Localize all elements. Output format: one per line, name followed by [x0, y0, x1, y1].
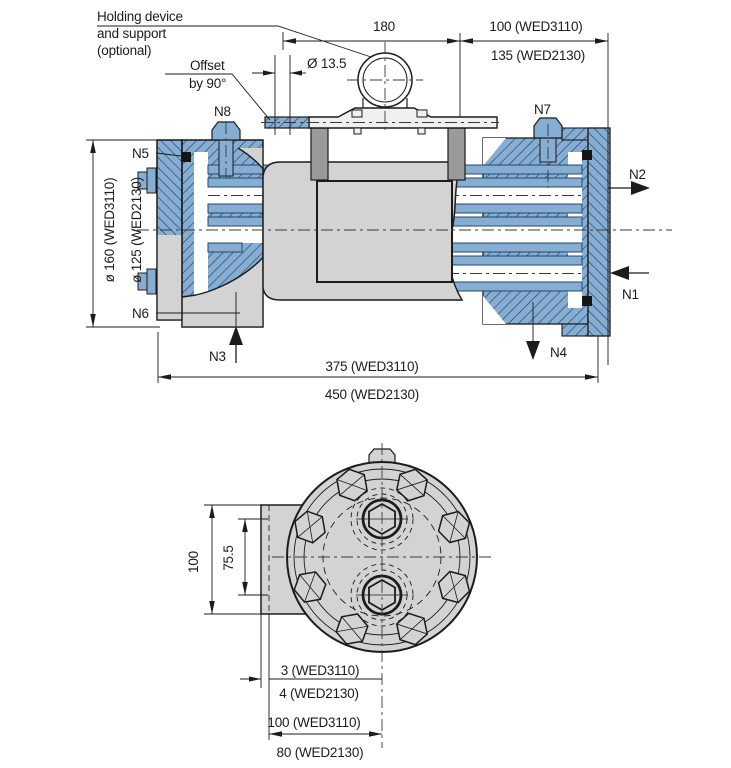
- end-view: 100 75.5 3 (WED3110) 4 (WED2130) 100 (WE…: [186, 443, 492, 760]
- port-label-n1: N1: [622, 287, 639, 302]
- n1-flow-arrow: [610, 266, 649, 280]
- dim-port-spacing: 75.5: [221, 545, 236, 570]
- offset-note-line1: Offset: [190, 58, 225, 73]
- dim-450: 450 (WED2130): [325, 387, 419, 402]
- n2-flow-arrow: [608, 181, 650, 195]
- right-seal-lower: [582, 296, 592, 306]
- port-label-n5: N5: [132, 146, 149, 161]
- port-label-n4: N4: [550, 345, 568, 360]
- drawing-page: Holding device and support (optional) Of…: [0, 0, 731, 768]
- right-flange: [447, 118, 610, 336]
- port-label-n3: N3: [209, 349, 226, 364]
- left-seal: [181, 152, 191, 162]
- dim-center-wed2130: 80 (WED2130): [277, 745, 364, 760]
- right-seal-upper: [582, 150, 592, 160]
- port-label-n8: N8: [214, 104, 231, 119]
- nameplate: [317, 181, 452, 282]
- holding-bracket: [261, 42, 499, 180]
- dim-bracket-height: 100: [186, 551, 201, 573]
- dim-dia160: ø 160 (WED3110): [102, 178, 117, 283]
- dim-gap-wed2130: 4 (WED2130): [279, 686, 359, 701]
- dim-180: 180: [373, 19, 395, 34]
- left-flange: [138, 122, 280, 327]
- right-tube-bundle: [447, 165, 582, 291]
- port-label-n2: N2: [629, 167, 646, 182]
- section-view: Holding device and support (optional) Of…: [86, 9, 672, 402]
- dim-100-wed3110: 100 (WED3110): [489, 19, 582, 34]
- dim-135-wed2130: 135 (WED2130): [491, 48, 585, 63]
- bracket-leg-left: [311, 128, 328, 180]
- holding-note-line2: and support: [97, 26, 167, 41]
- offset-note-line2: by 90°: [189, 76, 226, 91]
- port-label-n6: N6: [132, 306, 149, 321]
- port-label-n7: N7: [534, 102, 551, 117]
- bracket-leg-right: [448, 128, 465, 180]
- heat-exchanger-drawing: Holding device and support (optional) Of…: [0, 0, 731, 768]
- dim-dia125: ø 125 (WED2130): [129, 177, 144, 283]
- holding-note-line1: Holding device: [97, 9, 183, 24]
- dim-375: 375 (WED3110): [325, 359, 418, 374]
- dim-gap-wed3110: 3 (WED3110): [281, 663, 360, 678]
- bracket-plate: [309, 108, 497, 128]
- holding-note-line3: (optional): [97, 43, 151, 58]
- left-tubesheet: [194, 152, 208, 310]
- dim-center-wed3110: 100 (WED3110): [267, 715, 360, 730]
- hole-dia-label: Ø 13.5: [307, 56, 346, 71]
